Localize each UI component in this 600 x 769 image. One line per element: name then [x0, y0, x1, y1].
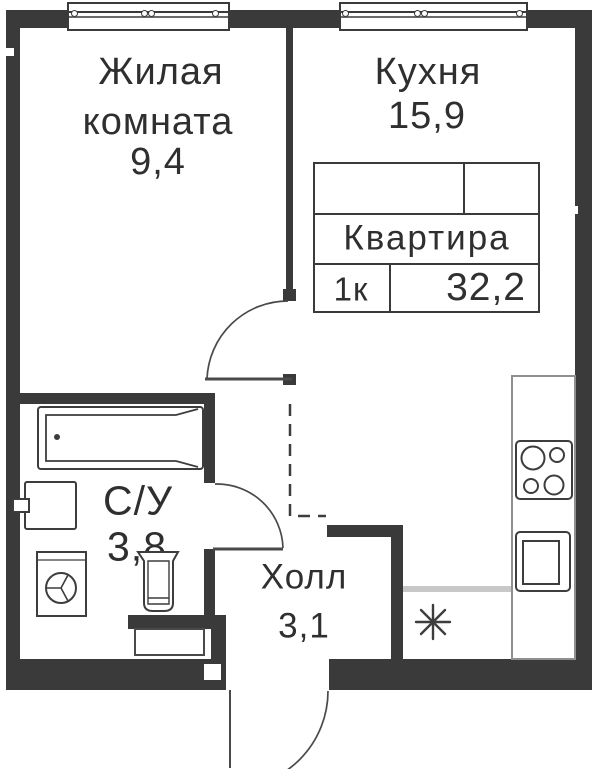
wall-entry-jamb — [211, 615, 226, 661]
window-joint-icon — [71, 10, 78, 17]
entrance-door-icon — [230, 690, 328, 769]
wall-bathroom-right-upper — [204, 393, 215, 483]
living-room-window — [67, 2, 230, 31]
washing-machine-icon — [37, 552, 86, 616]
window-frame-line — [341, 11, 526, 13]
wall-divider-endcap — [283, 289, 296, 301]
wall-seam-bottom-jamb — [204, 664, 221, 680]
wall-seam-corner — [8, 0, 17, 8]
table-area-cell: 32,2 — [389, 263, 534, 313]
kitchen-area: 15,9 — [388, 97, 466, 135]
wall-hall-kitchen-vertical — [391, 525, 403, 661]
table-line — [463, 164, 465, 213]
table-line — [315, 213, 538, 215]
wall-door-hinge-stub — [283, 374, 296, 385]
window-sill-line — [341, 16, 526, 18]
kitchen-window — [339, 2, 528, 31]
window-joint-icon — [212, 10, 219, 17]
living-room-door-icon — [205, 301, 292, 379]
wall-right — [575, 10, 592, 690]
bathroom-label: С/У — [103, 481, 173, 522]
living-room-label-line2: комната — [83, 103, 234, 141]
bathroom-door-icon — [213, 484, 283, 549]
window-joint-icon — [414, 10, 421, 17]
wall-bathroom-step — [128, 615, 215, 629]
window-joint-icon — [148, 10, 155, 17]
window-joint-icon — [141, 10, 148, 17]
wall-bathroom-top — [20, 393, 215, 404]
window-joint-icon — [516, 10, 523, 17]
window-joint-icon — [342, 10, 349, 17]
living-room-area: 9,4 — [130, 143, 186, 181]
wall-bottom-right — [329, 659, 592, 690]
wall-seam-right — [566, 206, 578, 214]
table-title: Квартира — [343, 221, 510, 256]
table-rooms-value: 1к — [334, 273, 369, 306]
wall-seam-left — [4, 48, 14, 56]
bathroom-area: 3,8 — [107, 527, 167, 568]
floor-plan: Квартира 1к 32,2 Жилая комната 9,4 Кухня… — [0, 0, 600, 769]
kitchen-counter — [511, 375, 576, 660]
window-joint-icon — [421, 10, 428, 17]
living-room-label-line1: Жилая — [98, 53, 223, 91]
wall-top-middle — [230, 10, 339, 28]
kitchen-label: Кухня — [375, 53, 482, 91]
table-area-value: 32,2 — [446, 266, 526, 310]
wall-bottom-left — [6, 659, 226, 690]
bath-sink-icon — [13, 482, 76, 529]
bathtub-icon — [38, 407, 203, 469]
wall-left — [6, 10, 20, 690]
plumbing-duct-box — [134, 628, 205, 656]
wall-room-divider — [286, 28, 293, 301]
dashed-opening-line — [290, 404, 326, 516]
hall-area: 3,1 — [278, 609, 330, 644]
vent-niche-edge — [403, 586, 511, 592]
vent-asterisk-icon — [416, 605, 450, 639]
hall-label: Холл — [261, 560, 348, 595]
